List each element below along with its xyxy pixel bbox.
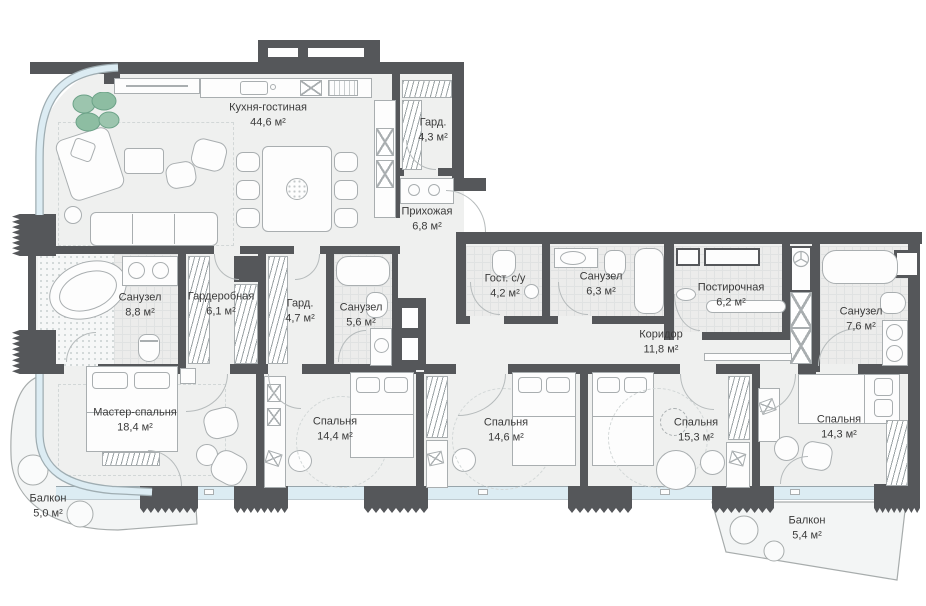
room-label-corridor: Коридор11,8 м² [639, 328, 682, 359]
room-label-bathroom-master: Санузел8,8 м² [119, 291, 162, 322]
room-label-bathroom-4: Санузел7,6 м² [840, 305, 883, 336]
tv [126, 85, 188, 87]
sink [128, 262, 145, 279]
chair [334, 208, 358, 228]
wall [702, 332, 784, 340]
floor-plan: Кухня-гостиная44,6 м² Гард.4,3 м² Прихож… [0, 0, 926, 606]
room-label-kitchen-living: Кухня-гостиная44,6 м² [229, 101, 307, 132]
pillar [364, 486, 428, 502]
room-label-balcony-right: Балкон5,4 м² [789, 514, 826, 545]
wall [812, 244, 820, 372]
sofa-seam [132, 214, 133, 244]
chair [334, 152, 358, 172]
wall [28, 252, 36, 332]
hall-cabinet-knob [408, 184, 420, 196]
plant-pot-icon [764, 541, 784, 561]
wall [326, 252, 334, 364]
desk-chair [774, 436, 799, 461]
insulation-hatch [234, 502, 288, 513]
pillow [134, 372, 170, 389]
pillar [26, 214, 56, 256]
room-label-bedroom-3: Спальня14,6 м² [484, 416, 528, 447]
wall [258, 252, 266, 364]
insulation-hatch [140, 502, 198, 513]
room-label-master-bedroom: Мастер-спальня18,4 м² [93, 406, 176, 437]
pillar [874, 484, 920, 502]
room-label-wardrobe-top: Гард.4,3 м² [418, 116, 448, 147]
wall [542, 244, 550, 324]
wardrobe-shelving [728, 376, 750, 440]
laundry-closet [676, 248, 700, 266]
insulation-hatch [874, 502, 920, 513]
wall [592, 316, 674, 324]
insulation-hatch [12, 330, 26, 374]
pillar [140, 486, 198, 502]
wall [452, 62, 464, 180]
sofa-long [90, 212, 218, 246]
chair [236, 208, 260, 228]
shaft-window [306, 46, 366, 59]
pillow [92, 372, 128, 389]
room-label-laundry: Постирочная6,2 м² [698, 281, 765, 312]
plant-pot-icon [67, 501, 93, 527]
room-label-wardrobe-small: Гард.4,7 м² [285, 297, 315, 328]
wall [782, 244, 790, 340]
cooktop [300, 80, 322, 96]
sink [886, 324, 903, 341]
insulation-hatch [12, 214, 26, 256]
insulation-hatch [712, 502, 774, 513]
oven [376, 160, 394, 188]
room-label-bedroom-2: Спальня14,4 м² [313, 415, 357, 446]
shaft-window [266, 46, 300, 59]
plant-pot-icon [18, 455, 48, 485]
insulation-hatch [364, 502, 428, 513]
pillar [234, 486, 288, 502]
dishwasher [328, 80, 358, 96]
laundry-closet [704, 248, 760, 266]
wall [452, 178, 486, 191]
corridor-console [704, 353, 792, 361]
wardrobe-shelving [402, 80, 452, 98]
floor-lamp [64, 206, 82, 224]
wall [504, 316, 550, 324]
room-label-guest-wc: Гост. с/у4,2 м² [485, 272, 526, 303]
wardrobe-shelving [886, 420, 908, 486]
wall [908, 244, 920, 496]
plant-pot-icon [730, 516, 758, 544]
chair [236, 180, 260, 200]
wall [36, 246, 214, 254]
pillow [597, 377, 620, 393]
wall [438, 168, 454, 176]
room-label-bedroom-4: Спальня15,3 м² [674, 416, 718, 447]
shaft-window [400, 306, 420, 330]
wall [416, 372, 424, 490]
room-label-hallway: Прихожая6,8 м² [402, 205, 453, 236]
pillar [712, 486, 774, 502]
blanket-line [864, 374, 865, 424]
wall [30, 62, 460, 74]
window-mullion [204, 489, 214, 495]
wall [256, 372, 264, 490]
room-label-bathroom-2: Санузел5,6 м² [340, 301, 383, 332]
pillar [26, 330, 56, 374]
table-centerpiece [286, 178, 308, 200]
wardrobe-shelving [426, 376, 448, 438]
sink [524, 284, 539, 299]
wall [580, 372, 588, 490]
plant-icon [70, 92, 124, 136]
chair [334, 180, 358, 200]
shelf-unit [267, 408, 281, 426]
bathtub [336, 256, 390, 286]
insulation-hatch [568, 502, 632, 513]
pillar [568, 486, 632, 502]
shaft-window [400, 336, 420, 362]
wall [550, 316, 558, 324]
wall [178, 252, 186, 364]
wall [456, 244, 466, 324]
wall [456, 316, 470, 324]
shaft-xbrace [790, 328, 812, 364]
desk-chair [700, 450, 725, 475]
kitchen-sink [240, 81, 268, 95]
pillow [518, 377, 542, 393]
pillow [874, 399, 893, 417]
toilet [880, 292, 906, 314]
coffee-table [124, 148, 164, 174]
sink-oval [560, 251, 586, 265]
hall-cabinet-knob [428, 184, 440, 196]
wall [240, 246, 294, 254]
room-label-bathroom-3: Санузел6,3 м² [580, 270, 623, 301]
window-mullion [660, 489, 670, 495]
wall [424, 364, 456, 374]
sink [374, 338, 389, 353]
faucet [270, 84, 276, 90]
room-label-dressing: Гардеробная6,1 м² [188, 290, 255, 321]
wall [664, 244, 674, 340]
toilet [138, 334, 160, 362]
pillow [546, 377, 570, 393]
bathtub [634, 248, 664, 314]
window-mullion [478, 489, 488, 495]
sink [152, 262, 169, 279]
pillow [384, 377, 408, 393]
room-label-balcony-left: Балкон5,0 м² [30, 492, 67, 523]
room-label-bedroom-5: Спальня14,3 м² [817, 413, 861, 444]
sink [886, 345, 903, 362]
blanket-line [350, 414, 414, 415]
chair [236, 152, 260, 172]
wall [456, 232, 922, 244]
oven [376, 128, 394, 156]
lounge-chair [656, 450, 696, 490]
pillow [874, 378, 893, 396]
shaft-xbrace [790, 292, 812, 328]
sofa-seam [174, 214, 175, 244]
bathtub [822, 250, 898, 284]
fan-icon [792, 250, 810, 268]
pillow [356, 377, 380, 393]
toilet-tank [140, 340, 158, 342]
appliance-column [374, 100, 396, 218]
window-mullion [790, 489, 800, 495]
